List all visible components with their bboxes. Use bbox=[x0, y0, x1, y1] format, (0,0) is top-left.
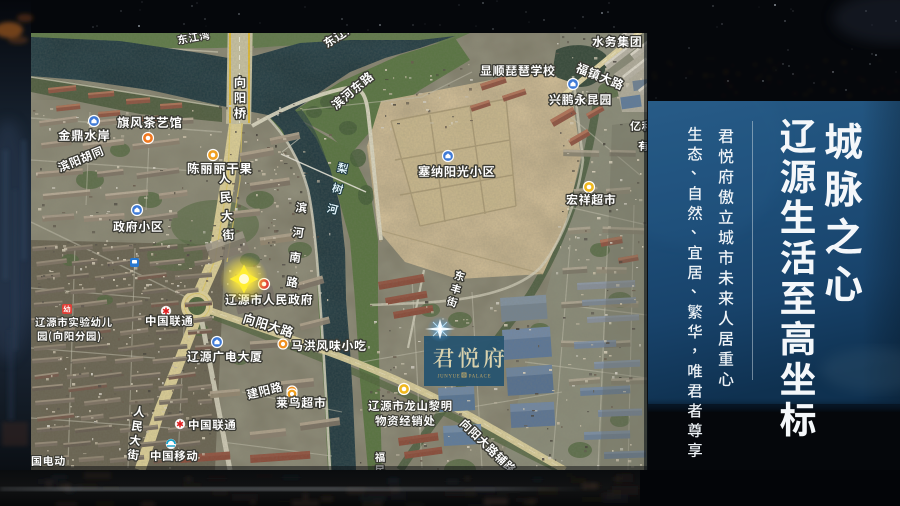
svg-text:PALACE: PALACE bbox=[469, 375, 491, 380]
svg-text:JUNYUE: JUNYUE bbox=[438, 375, 461, 380]
